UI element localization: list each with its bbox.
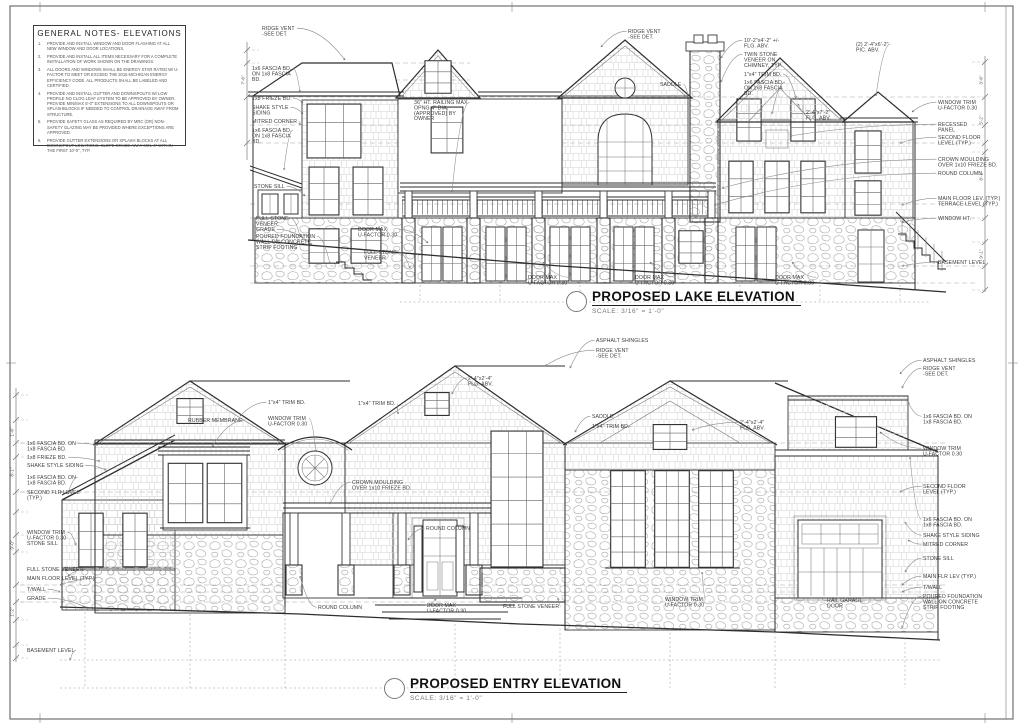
- svg-text:RIDGE VENT-SEE DET.: RIDGE VENT-SEE DET.: [262, 26, 295, 37]
- leader-line: [912, 102, 937, 112]
- svg-text:T/WALL: T/WALL: [923, 585, 942, 591]
- svg-text:ROUND COLUMN: ROUND COLUMN: [318, 605, 362, 611]
- leader-line: [297, 28, 345, 60]
- dimension-text: 8'-1": [10, 467, 15, 477]
- bay-window-assembly: [158, 447, 250, 530]
- note-number: 6.: [38, 138, 44, 154]
- svg-text:1"x4" TRIM BD.: 1"x4" TRIM BD.: [268, 400, 306, 406]
- svg-text:WINDOW TRIMU-FACTOR 0.30: WINDOW TRIMU-FACTOR 0.30: [938, 100, 977, 111]
- svg-text:1x6 FASCIA BD.ON 1x8 FASCIABD.: 1x6 FASCIA BD.ON 1x8 FASCIABD.: [252, 128, 291, 145]
- drawing-bubble-icon: [384, 678, 405, 699]
- svg-text:WINDOW TRIMU-FACTOR 0.30STONE: WINDOW TRIMU-FACTOR 0.30STONE SILL: [27, 530, 66, 547]
- svg-text:CROWN MOULDINGOVER 1x10 FRIEZE: CROWN MOULDINGOVER 1x10 FRIEZE BD.: [352, 480, 411, 491]
- svg-text:FULL STONE VENEER: FULL STONE VENEER: [503, 604, 559, 610]
- general-notes-title: GENERAL NOTES- ELEVATIONS: [34, 26, 185, 40]
- entry-drawing-scale: SCALE: 3/16" = 1'-0": [410, 695, 627, 702]
- svg-text:MITRED CORNER: MITRED CORNER: [252, 119, 297, 125]
- svg-text:ROUND COLUMN: ROUND COLUMN: [938, 171, 982, 177]
- svg-text:SHAKE STYLE SIDING: SHAKE STYLE SIDING: [27, 463, 84, 469]
- general-note: 4.PROVIDE AND INSTALL GUTTER AND DOWNSPO…: [38, 91, 180, 117]
- garage-dormer: [788, 396, 908, 450]
- svg-text:STONE SILL: STONE SILL: [254, 184, 285, 190]
- annotation-callout: (2) 2'-4"x6'-2"PIC. ABV.: [856, 42, 890, 96]
- svg-text:SHAKE STYLESIDING: SHAKE STYLESIDING: [252, 105, 289, 116]
- annotation-callout: WINDOW TRIMU-FACTOR 0.30: [912, 100, 977, 112]
- annotation-callout: RIDGE VENT-SEE DET.: [545, 348, 629, 366]
- note-text: PROVIDE AND INSTALL GUTTER AND DOWNSPOUT…: [47, 91, 180, 117]
- svg-text:WINDOW TRIMU-FACTOR 0.30: WINDOW TRIMU-FACTOR 0.30: [268, 416, 307, 427]
- general-notes-box: GENERAL NOTES- ELEVATIONS 1.PROVIDE AND …: [33, 25, 186, 146]
- leader-line: [545, 350, 595, 366]
- svg-text:GRADE: GRADE: [256, 227, 275, 233]
- general-note: 6.PROVIDE GUTTER EXTENSIONS OR SPLASH BL…: [38, 138, 180, 154]
- general-note: 5.PROVIDE SAFETY GLASS AS REQUIRED BY MR…: [38, 119, 180, 135]
- elevation-sheet: { "general_notes": { "title": "GENERAL N…: [0, 0, 1024, 725]
- svg-text:1x6 FASCIA BD. ON1x8 FASCIA BD: 1x6 FASCIA BD. ON1x8 FASCIA BD.: [923, 517, 972, 528]
- svg-text:WINDOW HT.: WINDOW HT.: [938, 216, 971, 222]
- annotation-callout: DOOR MAXU-FACTOR 0.30: [426, 599, 467, 614]
- svg-text:MAIN FLR LEV (TYP.): MAIN FLR LEV (TYP.): [923, 574, 976, 580]
- svg-text:POURED FOUNDATIONWALL ON CONCR: POURED FOUNDATIONWALL ON CONCRETESTRIP F…: [923, 594, 982, 611]
- svg-text:WINDOW TRIMU-FACTOR 0.30: WINDOW TRIMU-FACTOR 0.30: [665, 597, 704, 608]
- leader-line: [900, 360, 922, 374]
- annotation-callout: 1x6 FASCIA BD. ON1x8 FASCIA BD.: [27, 441, 98, 452]
- svg-text:WINDOW TRIMU-FACTOR 0.30: WINDOW TRIMU-FACTOR 0.30: [923, 446, 962, 457]
- dimension-text: 8'-1": [979, 171, 984, 181]
- dimension-text: 1'-6": [10, 427, 15, 437]
- svg-text:FULL STONE VENEER: FULL STONE VENEER: [27, 567, 83, 573]
- annotation-callout: 1x8 FRIEZE BD.: [27, 455, 100, 461]
- note-text: PROVIDE AND INSTALL WINDOW AND DOOR FLAS…: [47, 41, 180, 51]
- svg-text:RIDGE VENT-SEE DET.: RIDGE VENT-SEE DET.: [628, 29, 661, 40]
- entry-title-block: PROPOSED ENTRY ELEVATION SCALE: 3/16" = …: [384, 676, 627, 702]
- note-number: 2.: [38, 54, 44, 64]
- annotation-callout: SHAKE STYLE SIDING: [27, 463, 106, 470]
- dimension-text: 5'-2": [979, 115, 984, 125]
- annotation-callout: RIDGE VENT-SEE DET.: [902, 366, 956, 388]
- general-notes-list: 1.PROVIDE AND INSTALL WINDOW AND DOOR FL…: [34, 40, 185, 153]
- entry-drawing-title: PROPOSED ENTRY ELEVATION: [410, 676, 627, 693]
- note-number: 3.: [38, 67, 44, 88]
- leader-line: [570, 340, 595, 368]
- svg-text:1x8 FRIEZE BD.: 1x8 FRIEZE BD.: [27, 455, 67, 461]
- svg-text:ROUND COLUMN: ROUND COLUMN: [426, 526, 470, 532]
- svg-text:MITRED CORNER: MITRED CORNER: [923, 542, 968, 548]
- svg-text:2'-4"x7'-2"FLG. ABV.: 2'-4"x7'-2"FLG. ABV.: [806, 110, 831, 121]
- annotation-callout: 1x6 FASCIA BD.ON 1x8 FASCIABD.: [252, 128, 293, 170]
- note-text: ALL DOORS AND WINDOWS SHALL BE ENERGY ST…: [47, 67, 180, 88]
- dimension-text: 1'-2": [10, 607, 15, 617]
- leader-line: [721, 54, 743, 82]
- note-text: PROVIDE GUTTER EXTENSIONS OR SPLASH BLOC…: [47, 138, 180, 154]
- svg-text:1x6 FASCIA BD. ON1x8 FASCIA BD: 1x6 FASCIA BD. ON1x8 FASCIA BD.: [27, 441, 76, 452]
- annotation-callout: 1x6 FASCIA BD. ON1x8 FASCIA BD.: [908, 402, 972, 425]
- annotation-callout: RIDGE VENT-SEE DET.: [601, 29, 661, 47]
- svg-text:(2) 2'-4"x6'-2"PIC. ABV.: (2) 2'-4"x6'-2"PIC. ABV.: [856, 42, 889, 53]
- svg-text:SECOND FLOORLEVEL (TYP.): SECOND FLOORLEVEL (TYP.): [923, 484, 966, 495]
- annotation-callout: BASEMENT LEVEL: [27, 648, 76, 660]
- svg-text:ASPHALT SHINGLES: ASPHALT SHINGLES: [923, 358, 976, 364]
- svg-text:RIDGE VENT-SEE DET.: RIDGE VENT-SEE DET.: [923, 366, 956, 377]
- svg-text:STONE SILL: STONE SILL: [923, 556, 954, 562]
- svg-text:GRADE: GRADE: [27, 596, 46, 602]
- svg-text:CROWN MOULDINGOVER 1x10 FRIEZE: CROWN MOULDINGOVER 1x10 FRIEZE BD.: [938, 157, 997, 168]
- svg-text:10'-2"x4'-2" +/-FLG. ABV.: 10'-2"x4'-2" +/-FLG. ABV.: [744, 38, 780, 49]
- svg-text:SHAKE STYLE SIDING: SHAKE STYLE SIDING: [923, 533, 980, 539]
- annotation-callout: RIDGE VENT-SEE DET.: [262, 26, 345, 60]
- lake-drawing-scale: SCALE: 3/16" = 1'-0": [592, 308, 801, 315]
- svg-text:1"x4" TRIM BD.: 1"x4" TRIM BD.: [744, 72, 782, 78]
- svg-text:SECOND FLOORLEVEL (TYP.): SECOND FLOORLEVEL (TYP.): [938, 135, 981, 146]
- dimension-text: 3'-6": [979, 75, 984, 85]
- entry-elevation-drawing: [20, 366, 945, 688]
- lake-elevation-drawing: [248, 35, 978, 302]
- leader-line: [48, 589, 60, 592]
- annotation-callout: 1"x4" TRIM BD.: [592, 424, 631, 430]
- entry-left-dim: 1'-6"8'-1"9'-0"1'-2": [10, 388, 29, 662]
- stone-chimney: [686, 35, 724, 222]
- note-text: PROVIDE SAFETY GLASS AS REQUIRED BY MRC …: [47, 119, 180, 135]
- leader-line: [293, 98, 303, 103]
- note-number: 4.: [38, 91, 44, 117]
- garage-door: [794, 516, 886, 600]
- leader-line: [908, 402, 922, 416]
- leader-line: [299, 121, 300, 125]
- leader-line: [902, 368, 922, 388]
- drawing-bubble-icon: [566, 291, 587, 312]
- svg-text:BASEMENT LEVEL: BASEMENT LEVEL: [27, 648, 74, 654]
- lake-picture-window: [307, 104, 361, 158]
- annotation-callout: SHAKE STYLESIDING: [252, 105, 303, 116]
- annotation-callout: 1x8 FRIEZE BD.: [252, 96, 303, 103]
- svg-text:BASEMENT LEVEL: BASEMENT LEVEL: [938, 260, 985, 266]
- svg-text:SADDLE: SADDLE: [592, 414, 614, 420]
- note-number: 5.: [38, 119, 44, 135]
- svg-text:1"x4" TRIM BD.: 1"x4" TRIM BD.: [358, 401, 396, 407]
- svg-text:SADDLE: SADDLE: [660, 82, 682, 88]
- leader-line: [240, 402, 267, 416]
- annotation-callout: MAIN FLOOR LEV. (TYP.)TERRACE LEVEL (TYP…: [902, 196, 1001, 207]
- annotation-callout: MITRED CORNER: [252, 119, 300, 125]
- svg-text:TWIN STONEVENEER ONCHIMNEY, TY: TWIN STONEVENEER ONCHIMNEY, TYP.: [744, 52, 782, 69]
- svg-text:2'-4"x2'-4"FLG. ABV.: 2'-4"x2'-4"FLG. ABV.: [740, 420, 765, 431]
- svg-text:1x6 FASCIA BD. ON1x8 FASCIA BD: 1x6 FASCIA BD. ON1x8 FASCIA BD.: [27, 475, 76, 486]
- lake-drawing-title: PROPOSED LAKE ELEVATION: [592, 289, 801, 306]
- two-story-window: [491, 431, 543, 567]
- svg-text:2'-4"x2'-4"FLG. ABV.: 2'-4"x2'-4"FLG. ABV.: [468, 376, 493, 387]
- svg-text:1"x4" TRIM BD.: 1"x4" TRIM BD.: [592, 424, 630, 430]
- svg-text:RECESSEDPANEL: RECESSEDPANEL: [938, 122, 967, 133]
- svg-text:RUBBER MEMBRANE: RUBBER MEMBRANE: [188, 418, 243, 424]
- svg-text:MAIN FLOOR LEV. (TYP.)TERRACE: MAIN FLOOR LEV. (TYP.)TERRACE LEVEL (TYP…: [938, 196, 1001, 207]
- note-number: 1.: [38, 41, 44, 51]
- svg-text:RIDGE VENT-SEE DET.: RIDGE VENT-SEE DET.: [596, 348, 629, 359]
- svg-text:ASPHALT SHINGLES: ASPHALT SHINGLES: [596, 338, 649, 344]
- general-note: 2.PROVIDE AND INSTALL ALL ITEMS NECESSAR…: [38, 54, 180, 64]
- general-note: 3.ALL DOORS AND WINDOWS SHALL BE ENERGY …: [38, 67, 180, 88]
- lake-bay-window: [250, 166, 302, 218]
- leader-line: [291, 107, 303, 114]
- lake-title-block: PROPOSED LAKE ELEVATION SCALE: 3/16" = 1…: [566, 289, 801, 315]
- general-note: 1.PROVIDE AND INSTALL WINDOW AND DOOR FL…: [38, 41, 180, 51]
- note-text: PROVIDE AND INSTALL ALL ITEMS NECESSARY …: [47, 54, 180, 64]
- svg-text:T/WALL: T/WALL: [27, 587, 46, 593]
- dimension-text: 9'-0": [10, 540, 15, 550]
- dimension-text: 9'-1": [979, 249, 984, 259]
- annotation-callout: 1"x4" TRIM BD.: [240, 400, 306, 416]
- svg-text:1x6 FASCIA BD. ON1x8 FASCIA BD: 1x6 FASCIA BD. ON1x8 FASCIA BD.: [923, 414, 972, 425]
- dimension-text: 7'-6": [241, 75, 246, 85]
